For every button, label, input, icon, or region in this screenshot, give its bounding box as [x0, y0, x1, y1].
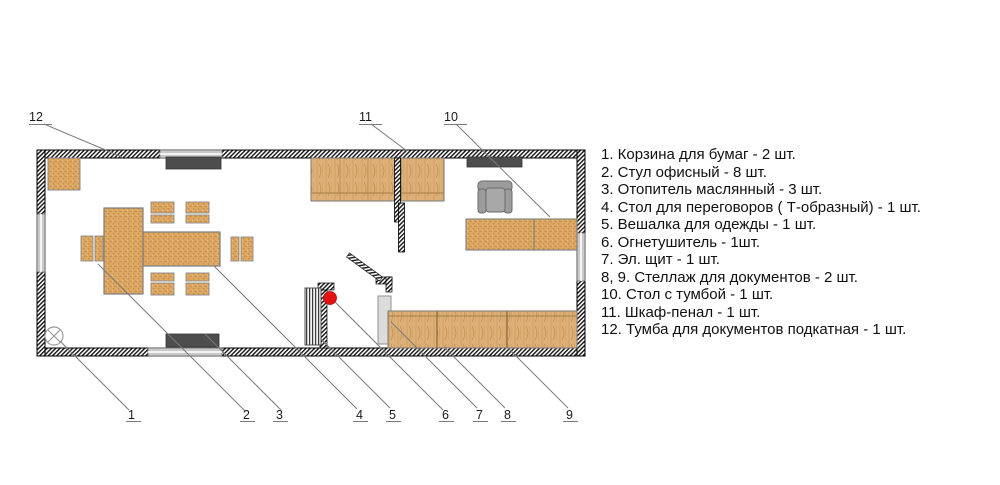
chair-top-1: [151, 202, 174, 223]
legend-item: 7. Эл. щит - 1 шт.: [601, 251, 996, 269]
callout-10: 10: [444, 110, 458, 124]
paper-basket-1: [45, 327, 63, 345]
legend-item: 2. Стул офисный - 8 шт.: [601, 164, 996, 182]
door-jamb-right-v: [386, 277, 392, 292]
chair-top-2: [186, 202, 209, 223]
desk-armchair: [478, 181, 512, 213]
chair-right: [231, 237, 253, 261]
door-leaf: [347, 253, 383, 281]
legend-item: 10. Стол с тумбой - 1 шт.: [601, 286, 996, 304]
mobile-cabinet-12: [48, 158, 80, 190]
pencil-cabinet-11: [401, 158, 444, 201]
callout-7: 7: [476, 408, 483, 422]
callout-11: 11: [359, 110, 372, 124]
legend-item: 3. Отопитель маслянный - 3 шт.: [601, 181, 996, 199]
callout-9: 9: [566, 408, 573, 422]
callout-1: 1: [128, 408, 135, 422]
legend-item: 8, 9. Стеллаж для документов - 2 шт.: [601, 269, 996, 287]
legend-item: 12. Тумба для документов подкатная - 1 ш…: [601, 321, 996, 339]
legend-item: 1. Корзина для бумаг - 2 шт.: [601, 146, 996, 164]
chair-bottom-2: [186, 273, 209, 295]
legend-item: 4. Стол для переговоров ( Т-образный) - …: [601, 199, 996, 217]
document-shelves-8-9: [388, 311, 577, 348]
callout-12: 12: [29, 110, 43, 124]
window-left: [37, 214, 45, 272]
callout-8: 8: [504, 408, 511, 422]
window-right: [577, 233, 585, 281]
office-floor-plan-page: 12 11 10 1 2 3 4 5 6 7 8 9 1. Корзина дл…: [0, 0, 1000, 485]
chair-bottom-1: [151, 273, 174, 295]
legend-item: 11. Шкаф-пенал - 1 шт.: [601, 304, 996, 322]
floor-plan-drawing: 12 11 10 1 2 3 4 5 6 7 8 9: [0, 0, 600, 440]
legend: 1. Корзина для бумаг - 2 шт. 2. Стул офи…: [601, 146, 996, 339]
heater-top-left: [166, 157, 221, 169]
desk-10: [466, 219, 577, 250]
callout-5: 5: [389, 408, 396, 422]
fire-extinguisher-6: [324, 292, 337, 305]
coat-rack-5: [305, 288, 321, 345]
window-bottom: [148, 348, 222, 356]
callout-6: 6: [442, 408, 449, 422]
legend-item: 6. Огнетушитель - 1шт.: [601, 234, 996, 252]
callout-3: 3: [276, 408, 283, 422]
callout-2: 2: [243, 408, 250, 422]
chair-left: [81, 236, 103, 261]
floor-plan: 12 11 10 1 2 3 4 5 6 7 8 9: [0, 0, 600, 440]
callout-4: 4: [356, 408, 363, 422]
legend-item: 5. Вешалка для одежды - 1 шт.: [601, 216, 996, 234]
document-shelf-top: [311, 158, 396, 201]
